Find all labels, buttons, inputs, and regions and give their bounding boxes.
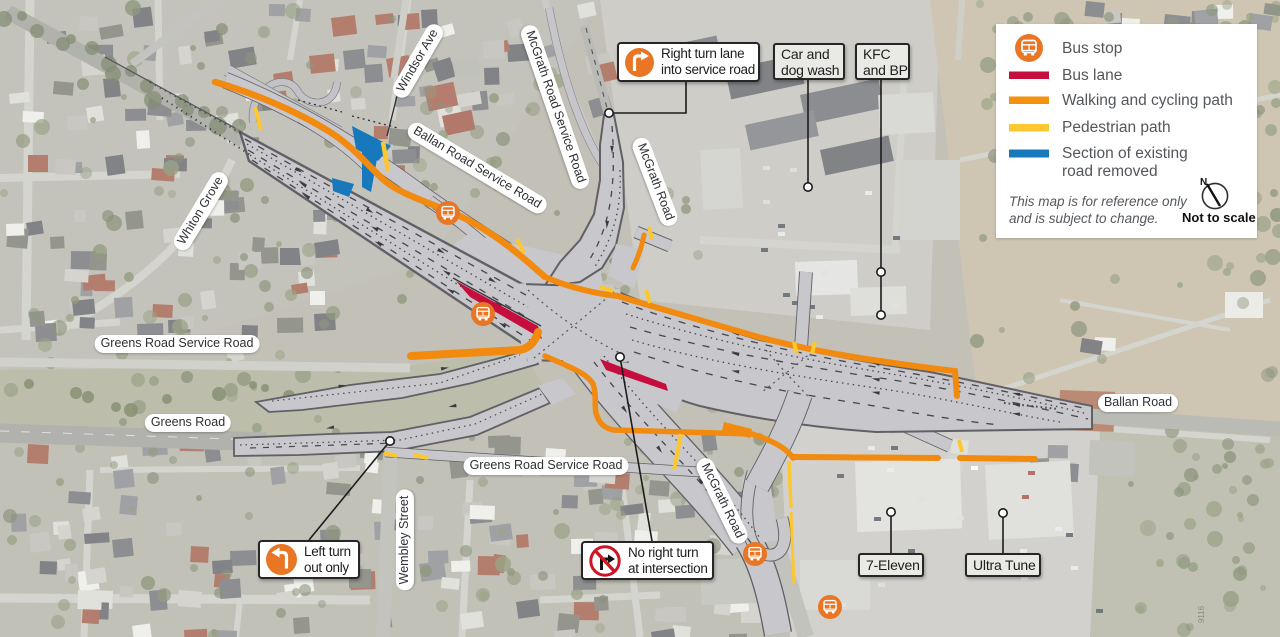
svg-text:N: N bbox=[1200, 177, 1207, 188]
